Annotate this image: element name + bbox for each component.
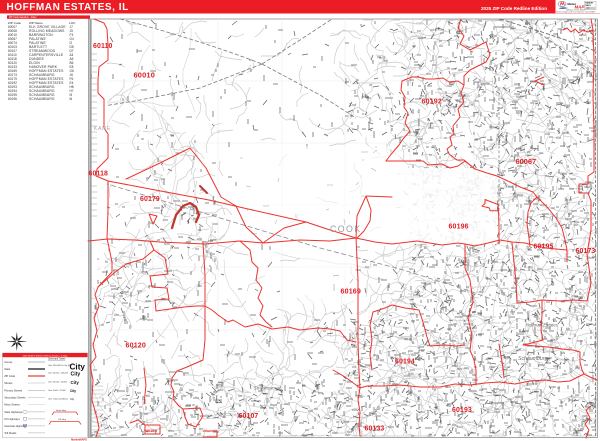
svg-text:City: City (71, 380, 80, 385)
svg-text:60173: 60173 (576, 248, 596, 255)
svg-text:Cities and Towns: Cities and Towns (48, 358, 66, 361)
svg-text:60067: 60067 (516, 157, 537, 166)
svg-text:Over 50,000 - 500,000: Over 50,000 - 500,000 (48, 372, 69, 374)
svg-text:60196: 60196 (8, 97, 17, 101)
svg-text:KANE: KANE (94, 126, 112, 132)
svg-text:Minor Streets: Minor Streets (4, 403, 20, 407)
svg-text:Secondary Streets: Secondary Streets (4, 396, 26, 400)
svg-text:COOK: COOK (330, 224, 362, 234)
svg-text:Over 25,000 - 50,000: Over 25,000 - 50,000 (48, 381, 68, 383)
svg-text:Streamwood: Streamwood (254, 386, 281, 392)
svg-text:Toll Roads: Toll Roads (4, 431, 17, 435)
svg-text:60194: 60194 (395, 359, 415, 366)
svg-text:State Hwy: State Hwy (56, 409, 67, 412)
svg-text:60193: 60193 (452, 407, 472, 414)
svg-text:Over 1,000 and Below: Over 1,000 and Below (48, 399, 68, 401)
svg-text:60120: 60120 (126, 342, 146, 350)
svg-text:60110: 60110 (93, 43, 113, 50)
svg-text:Over 5,000 - 25,000: Over 5,000 - 25,000 (48, 390, 67, 392)
svg-text:60118: 60118 (89, 171, 109, 178)
svg-text:60010: 60010 (134, 71, 156, 80)
svg-text:60196: 60196 (449, 224, 469, 231)
svg-text:60107: 60107 (239, 413, 259, 420)
svg-text:I6: I6 (70, 97, 73, 101)
svg-text:City: City (70, 389, 76, 393)
svg-text:Schaumburg: Schaumburg (518, 356, 548, 362)
svg-text:MarketMAPS: MarketMAPS (71, 438, 87, 441)
svg-text:2025 Redline Edition Hoffman E: 2025 Redline Edition Hoffman Estates, IL… (23, 354, 69, 357)
svg-text:MAPS: MAPS (585, 4, 591, 7)
svg-text:City: City (71, 371, 81, 377)
svg-text:US Highways: US Highways (4, 417, 20, 421)
svg-text:2025 ZIP Code Redline Edition: 2025 ZIP Code Redline Edition (481, 6, 547, 11)
svg-text:.com: .com (586, 8, 590, 10)
svg-text:Market Intelligence At Your Fi: Market Intelligence At Your Fingertips -… (556, 11, 596, 14)
svg-text:ZIP Code Selection - Index: ZIP Code Selection - Index (9, 16, 37, 19)
svg-text:60179: 60179 (140, 196, 160, 203)
svg-text:US Hwy: US Hwy (58, 419, 67, 421)
svg-text:60133: 60133 (365, 426, 385, 433)
svg-text:SCHAUMBURG: SCHAUMBURG (29, 97, 55, 101)
svg-text:60192: 60192 (422, 98, 442, 106)
svg-text:State: State (4, 367, 11, 371)
svg-text:HOFFMAN ESTATES, IL: HOFFMAN ESTATES, IL (7, 2, 129, 13)
svg-text:ZIP Code: ZIP Code (4, 374, 15, 378)
svg-text:60195: 60195 (534, 244, 554, 251)
svg-text:60169: 60169 (341, 288, 361, 296)
svg-text:Streets: Streets (4, 381, 13, 385)
svg-text:State Highways: State Highways (4, 410, 23, 414)
svg-text:Hoffman Estates: Hoffman Estates (526, 323, 559, 328)
svg-text:Primary Streets: Primary Streets (4, 389, 23, 393)
svg-text:County: County (4, 360, 13, 364)
svg-text:60103: 60103 (146, 429, 156, 433)
svg-text:City: City (70, 363, 86, 372)
